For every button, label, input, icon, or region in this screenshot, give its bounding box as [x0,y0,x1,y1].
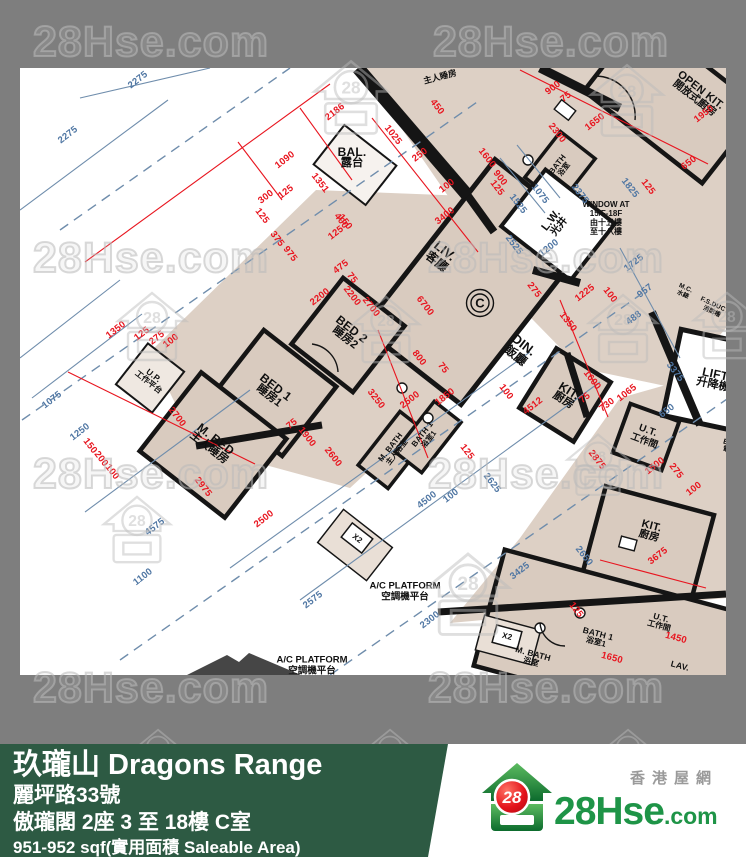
watermark-text: 28Hse.com [433,18,669,67]
dim-label-blue: 2275 [56,124,80,146]
dim-label-red: 1065 [615,382,639,404]
dim-label-red: 2500 [398,389,422,411]
dim-label-blue: 2650 [573,544,595,568]
dim-label-red: 100 [103,462,122,482]
dim-label-red: 800 [410,348,429,368]
dim-label-red: 1850 [433,386,457,408]
dim-label-blue: 4575 [143,516,167,538]
dim-label-blue: 2275 [126,69,150,91]
annotation-acp2: A/C PLATFORM空調機平台 [276,655,347,675]
dim-label-blue: 2525 [503,233,525,257]
property-info: 玖瓏山 Dragons Range 麗坪路33號 傲瓏閣 2座 3 至 18樓 … [13,747,322,857]
watermark-text: 28Hse.com [33,18,269,67]
room-label-liv: LIV.客廳 [423,238,458,274]
dim-label-blue: 3425 [508,560,532,582]
dim-label-red: 2200 [341,284,363,308]
dim-label-red: 75 [344,270,359,285]
room-label-bed2: BED 2睡房2 [326,313,370,354]
dim-label-red: 1900 [296,425,318,449]
room-label-bal: BAL.露台 [338,146,367,170]
room-label-bed1: BED 1睡房1 [250,371,294,412]
screenshot-root: BAL.露台LIV.客廳DIN.飯廳BED 2睡房2BED 1睡房1M. BED… [0,0,746,857]
room-label-lift: LIFT升降機 [695,365,726,396]
dim-label-red: 1350 [557,310,579,334]
dim-label-red: 75 [558,89,573,104]
dim-label-red: 1650 [583,111,607,133]
dim-label-red: 125 [639,177,658,197]
dim-label-red: 650 [679,154,699,173]
dim-label-red: 75 [435,360,450,375]
dim-label-red: 2975 [192,475,214,499]
dim-label-red: 2300 [546,121,568,145]
dim-label-red: 2200 [308,286,332,308]
dim-label-red: 100 [601,285,620,305]
room-label-ut: U.T.工作間 [629,422,662,451]
brand-wordmark: 28Hse.com [554,790,718,834]
dim-label-red: 2600 [322,445,344,469]
dim-label-red: 450 [428,97,447,117]
dim-label-red: 100 [497,382,516,402]
dim-label-red: 1500 [643,455,667,477]
estate-name: 玖瓏山 Dragons Range [13,747,322,783]
dim-label-red: 100 [684,480,704,499]
dim-label-blue: 650 [657,402,677,421]
dim-label-red: 1600 [476,146,498,170]
dim-label-red: 1025 [382,123,404,147]
dim-label-blue: 1100 [131,566,155,588]
room-label-x2a: X2 [350,533,363,546]
room-label-up: U.P.工作平台 [133,362,169,395]
room-label-x2b: X2 [501,632,513,643]
estate-address: 麗坪路33號 [13,783,322,809]
dim-label-blue: 2575 [301,589,325,611]
room-label-emc: E.M.C.電錶房 [720,438,726,459]
brand-tagline: 香港屋網 [630,767,718,788]
dim-label-red: 125 [253,206,272,226]
brand-house-logo: 28 [480,761,554,835]
dim-label-blue: 1200 [537,237,561,259]
annotation-acp1: A/C PLATFORM空調機平台 [369,581,440,602]
dim-label-red: 300 [256,188,276,207]
room-label-bath1: BATH 1浴室1 [411,420,442,453]
logo-28-number: 28 [502,788,522,807]
dim-label-red: 2700 [360,295,382,319]
dim-label-red: 3400 [433,205,457,227]
dim-label-red: 375 [268,229,287,249]
dim-label-red: 250 [410,146,430,165]
room-label-din: DIN.飯廳 [501,331,538,368]
dim-label-red: 1350 [104,319,128,341]
dim-label-red: 125 [458,442,477,462]
dim-label-red: 3250 [365,387,387,411]
unit-description: 傲瓏閣 2座 3 至 18樓 C室 [13,809,322,836]
dim-label-red: 1351 [309,171,331,195]
room-label-kit2: KIT.廚房 [637,519,663,546]
dim-label-red: 730 [597,396,617,415]
dim-label-blue: 1825 [619,176,641,200]
room-label-fsduct: F.S.DUCT消防槽 [696,297,726,322]
brand-name-suffix: .com [664,803,718,829]
dim-label-blue: 2300 [418,609,442,631]
dim-label-red: 1225 [573,282,597,304]
dim-label-blue: 1075 [40,389,64,411]
room-label-bath-adj: BATH浴室 [548,153,575,181]
floor-plan: BAL.露台LIV.客廳DIN.飯廳BED 2睡房2BED 1睡房1M. BED… [20,68,726,675]
dim-label-red: 1650 [600,650,624,666]
dim-label-blue: 1075 [529,182,551,206]
annotation-window-note: WINDOW AT15/F-18F由十五樓至十八樓 [582,201,629,237]
room-label-lav2: LAV. [670,659,690,672]
dim-label-red: 4512 [521,395,545,417]
dim-label-red: 2875 [586,448,608,472]
dim-label-blue: 4500 [415,489,439,511]
dim-label-red: 100 [437,177,457,196]
room-label-mc: M.C.水錶 [675,283,694,301]
property-info-bar: 玖瓏山 Dragons Range 麗坪路33號 傲瓏閣 2座 3 至 18樓 … [0,744,746,857]
saleable-area: 951-952 sqf(實用面積 Saleable Area) [13,836,322,857]
room-label-mbath2: M. BATH浴室 [512,645,551,671]
room-label-mbed: M. BED主人睡房 [187,421,237,468]
brand-panel: 香港屋網 28 28Hse.com [428,744,746,857]
dim-label-blue: 2625 [481,471,503,495]
dim-label-red: 1090 [273,149,297,171]
room-label-mbath: M. BATH主人浴室 [377,432,411,469]
dim-label-blue: 1725 [622,252,646,274]
dim-label-red: 1600 [581,368,603,392]
dim-label-red: 975 [281,244,300,264]
dim-label-red: 275 [525,280,544,300]
dim-label-red: 6700 [414,294,436,318]
dim-label-red: 3675 [646,545,670,567]
unit-marker-label: C [475,296,484,311]
dim-label-blue: 3375 [664,360,686,384]
dim-label-blue: 488 [624,309,644,328]
logo-window [500,815,534,825]
dim-label-red: 2186 [323,101,347,123]
dim-label-red: 275 [667,461,686,481]
dim-label-red: 1450 [664,630,688,646]
dim-label-red: 125 [276,183,296,202]
dim-label-blue: 100 [441,487,461,506]
dim-label-red: 125 [567,600,586,620]
dim-label-blue: 957 [635,282,655,301]
room-label-lw: L.W.光井 [540,208,572,240]
room-label-bath1-2: BATH 1浴室1 [580,626,615,651]
plan-labels: BAL.露台LIV.客廳DIN.飯廳BED 2睡房2BED 1睡房1M. BED… [20,68,726,675]
dim-label-red: 2700 [166,405,188,429]
dim-label-red: 2500 [252,508,276,530]
dim-label-blue: 1525 [507,192,529,216]
brand-name-main: 28Hse [554,790,664,833]
room-label-mbed-adj: 主人睡房 [423,68,458,85]
